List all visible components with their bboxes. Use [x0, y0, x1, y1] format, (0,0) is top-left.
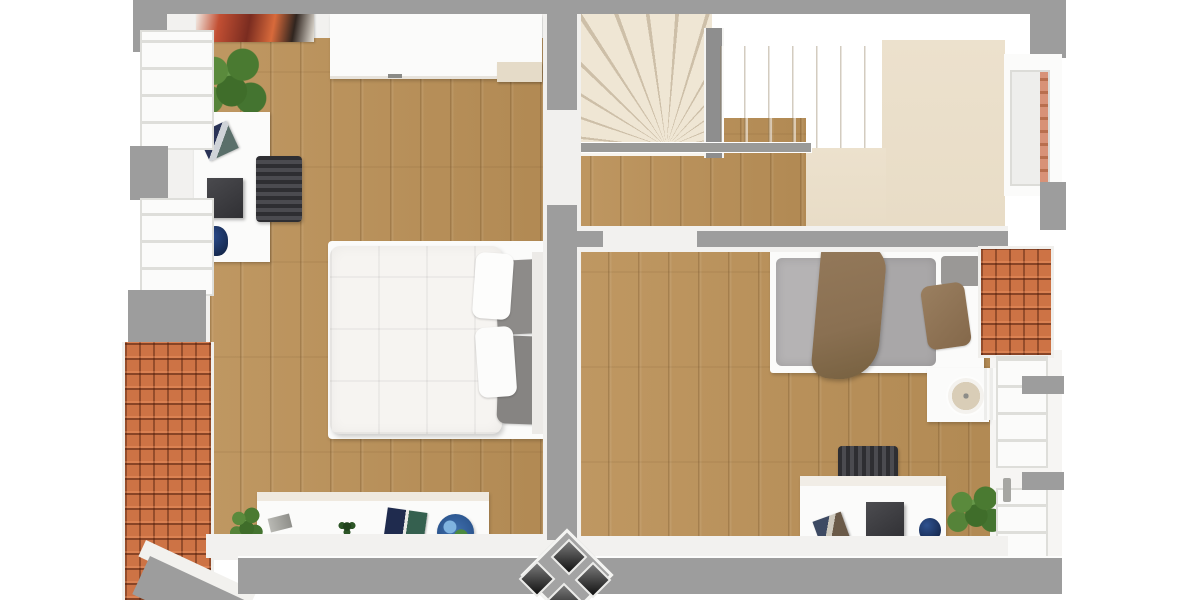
wardrobe-handles [388, 74, 402, 78]
straight-staircase [720, 46, 884, 148]
hall-room-wall-right [697, 231, 1008, 247]
left-window-upper [140, 30, 214, 150]
right-window-upper [996, 356, 1048, 468]
middle-wall-lower [547, 205, 577, 540]
wardrobe-shelf [497, 62, 542, 82]
floor-plan-canvas [0, 0, 1200, 600]
desk-chair-left [256, 156, 302, 222]
wall-stub-left-low [128, 290, 206, 344]
hall-room-wall-left [577, 231, 603, 247]
stair-landing [882, 40, 1005, 230]
left-window-lower [140, 198, 214, 296]
dormer-tile-sliver [1040, 72, 1048, 182]
gray-fold [941, 256, 981, 286]
white-pillow-top [472, 252, 515, 320]
stair-railing [562, 142, 812, 153]
bottom-floor-edge-right [578, 536, 1008, 558]
wall-stub-right-1 [1022, 376, 1064, 394]
bottom-floor-edge-left [206, 534, 547, 558]
table-lamp-icon [948, 378, 984, 414]
wall-stub-left-mid [130, 146, 168, 200]
roof-tiles-right [978, 246, 1054, 358]
middle-wall-upper [547, 0, 577, 110]
door-handle-icon [1003, 478, 1011, 502]
wall-stub-dormer-top [1030, 0, 1066, 58]
white-pillow-bottom [475, 326, 518, 398]
brown-cushion [920, 281, 972, 351]
bottom-exterior-wall [238, 556, 1062, 594]
wall-stub-dormer-bottom [1040, 182, 1066, 230]
top-exterior-wall [167, 0, 1065, 14]
stair-landing-extension [806, 148, 886, 230]
wall-stub-right-2 [1022, 472, 1064, 490]
winder-staircase [560, 13, 712, 156]
